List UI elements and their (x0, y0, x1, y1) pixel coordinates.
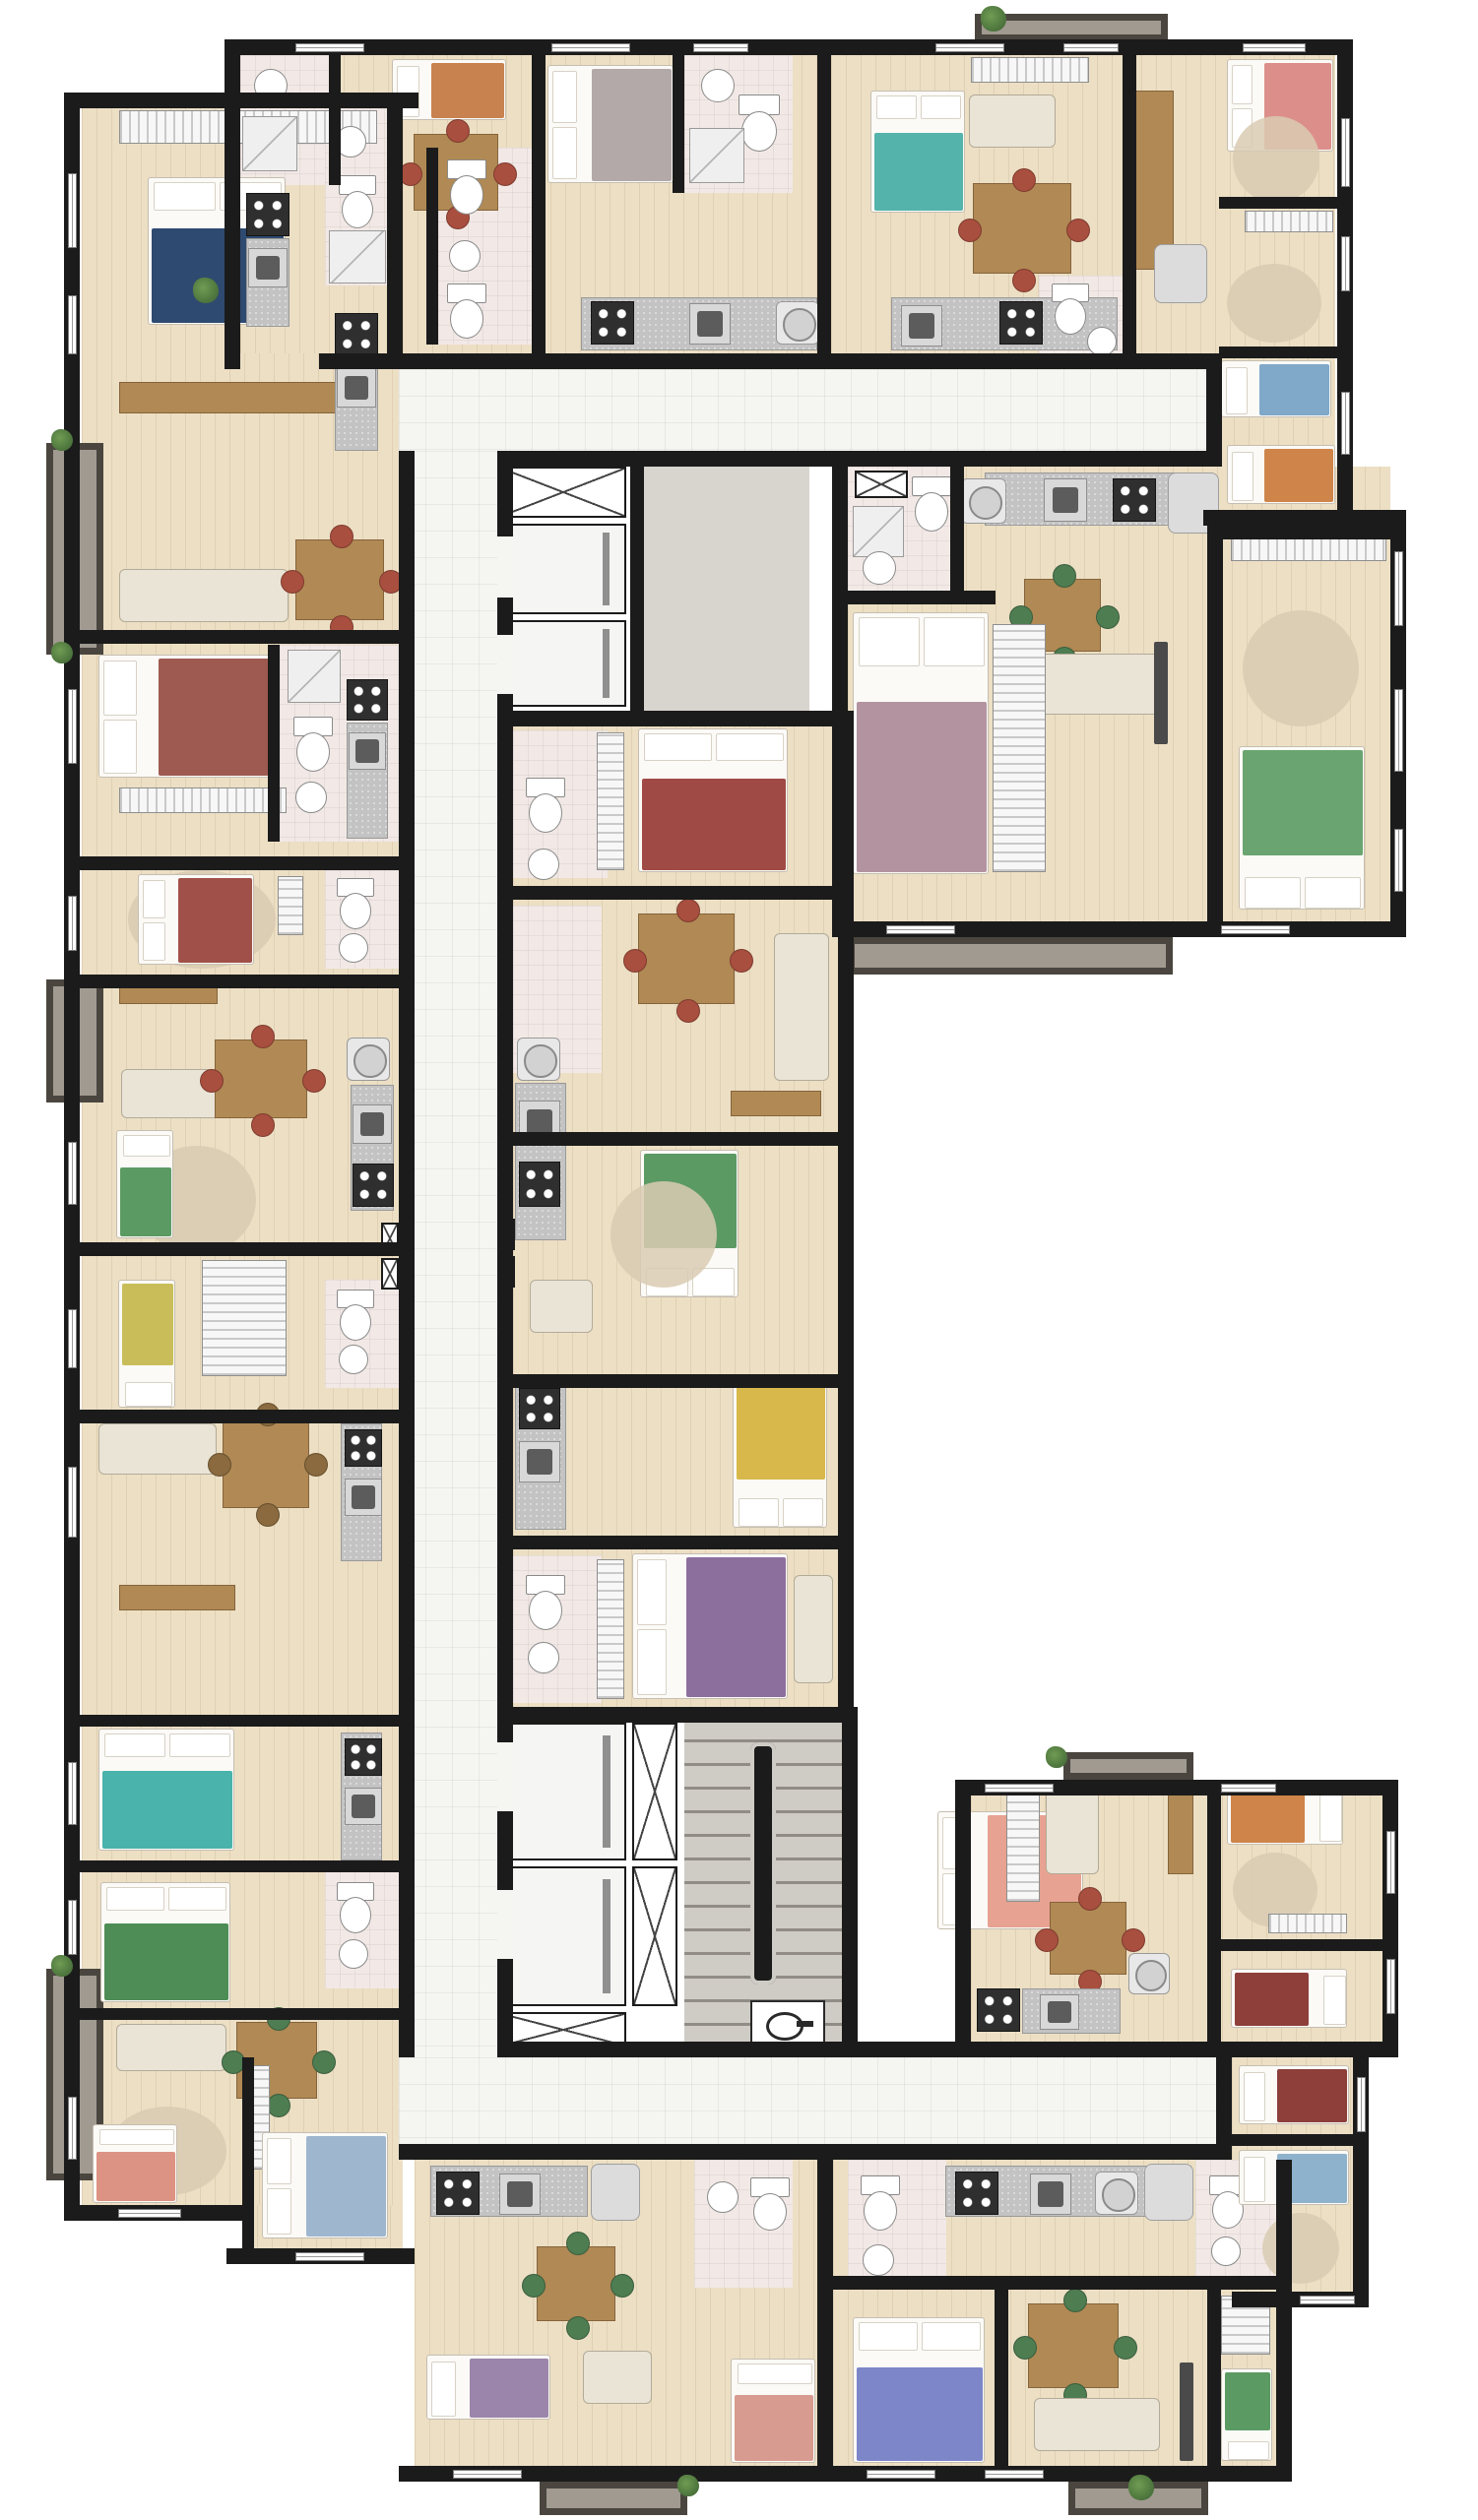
shaft (632, 1723, 677, 1860)
sideboard (119, 382, 355, 413)
kitchen-sink (1030, 2173, 1071, 2215)
bed-darkred (1239, 2065, 1349, 2124)
wall (1206, 353, 1222, 467)
wardrobe (278, 876, 303, 935)
chair (1012, 269, 1036, 292)
wall (1219, 346, 1337, 358)
chair (1053, 564, 1076, 588)
window (1221, 925, 1290, 934)
washer-drum (783, 308, 815, 341)
chair (610, 2274, 634, 2298)
balcony (848, 937, 1173, 975)
bed-duvet (104, 1923, 228, 2000)
bed-pillow (104, 1733, 165, 1757)
wall (268, 645, 280, 842)
wc-bowl (529, 1591, 562, 1630)
wall (80, 975, 403, 988)
sink-basin (909, 313, 934, 339)
bed-duvet (102, 1771, 232, 1849)
wall (1219, 197, 1337, 209)
bed-pillow (922, 2322, 981, 2351)
bed-duvet (1225, 2372, 1270, 2430)
shaft (381, 1258, 399, 1290)
window (1386, 1959, 1395, 2014)
chair (446, 119, 470, 143)
bed-orange (1227, 445, 1335, 504)
wc-bowl (529, 793, 562, 833)
bed-duvet (178, 878, 252, 963)
kitchen-sink (345, 1788, 382, 1825)
elevator (504, 1866, 626, 2006)
gap (497, 1742, 513, 1811)
chair (958, 219, 982, 242)
wardrobe (1006, 1784, 1040, 1902)
bed-pillow (1319, 1795, 1342, 1842)
bed-duvet (857, 2367, 983, 2461)
bed-pillow (738, 2363, 812, 2384)
dining-table (295, 539, 384, 620)
chair (676, 999, 700, 1023)
washer (1128, 1953, 1170, 1994)
bed-pillow (103, 661, 137, 716)
bed-pillow (1228, 2441, 1269, 2460)
bed-blue (1221, 360, 1331, 417)
kitchen-sink (519, 1441, 560, 1482)
window (68, 1142, 77, 1205)
wall (995, 2290, 1008, 2466)
wall (225, 39, 1353, 55)
kitchen-sink (1040, 1994, 1079, 2030)
basin (1087, 327, 1117, 356)
window (1394, 551, 1403, 626)
bed-salmon (731, 2359, 815, 2463)
sofa (116, 2024, 226, 2071)
balcony (1063, 1752, 1193, 1780)
gap (497, 536, 513, 598)
balcony (540, 2482, 687, 2515)
washer-drum (1102, 2178, 1134, 2211)
bed-pillow (637, 1629, 667, 1695)
stove (519, 1162, 560, 1207)
sofa (1034, 2398, 1160, 2451)
wall (513, 1536, 838, 1549)
bed-duvet (857, 702, 987, 872)
wall (630, 467, 644, 711)
wall (1232, 2134, 1353, 2146)
chair (200, 1069, 224, 1093)
basin (1211, 2236, 1241, 2266)
bed-duvet (431, 63, 504, 118)
bed-pillow (637, 1559, 667, 1625)
elev-door (603, 1879, 610, 1993)
chair (493, 162, 517, 186)
elev-door (603, 629, 610, 699)
window (295, 43, 364, 52)
wall (497, 711, 841, 726)
wc-bowl (340, 1304, 371, 1341)
window (1341, 392, 1350, 455)
bed-gray (547, 65, 674, 183)
sink-basin (697, 311, 723, 337)
chair (1013, 2336, 1037, 2360)
wall (848, 591, 996, 604)
bed-duvet (306, 2136, 386, 2236)
chair (267, 2094, 290, 2117)
sink-basin (1053, 487, 1079, 514)
toilet (739, 94, 778, 150)
stove (345, 1429, 382, 1467)
sink-basin (355, 739, 378, 762)
plant (677, 2475, 699, 2496)
armchair (583, 2351, 652, 2404)
gap (497, 635, 513, 694)
fridge (591, 2164, 640, 2221)
shower (288, 650, 341, 703)
wardrobe (971, 57, 1089, 83)
washer (517, 1038, 560, 1081)
rug (1233, 116, 1319, 203)
wall (1207, 1939, 1382, 1951)
stove (436, 2172, 480, 2215)
wall (329, 55, 341, 185)
window (1341, 118, 1350, 187)
toilet (447, 283, 484, 337)
wall (80, 1860, 403, 1872)
chair (676, 899, 700, 922)
elevator (504, 1723, 626, 1860)
bed-teal (98, 1729, 234, 1851)
wall (817, 2144, 833, 2482)
stove (955, 2172, 998, 2215)
bed-pillow (921, 95, 961, 119)
toilet (337, 1290, 372, 1339)
wall (399, 2144, 1232, 2160)
basin (528, 1642, 559, 1673)
wc-bowl (741, 111, 777, 152)
window (68, 1309, 77, 1368)
bed-pillow (1232, 452, 1253, 501)
sofa (969, 94, 1056, 148)
dining-table (1050, 1902, 1126, 1975)
sink-basin (507, 2181, 533, 2207)
bed-pillow (143, 880, 165, 918)
bed-mauve (853, 612, 989, 874)
kitchen-sink (248, 248, 288, 287)
rug (1227, 264, 1321, 343)
rug (1243, 610, 1359, 726)
kitchen-sink (901, 305, 942, 346)
basin (707, 2181, 739, 2213)
wardrobe (597, 732, 624, 870)
wall (532, 55, 546, 353)
wall (513, 886, 838, 900)
wall (80, 856, 403, 870)
wall (80, 1410, 403, 1423)
wall (955, 1780, 971, 2042)
chair (251, 1025, 275, 1048)
wall (387, 93, 403, 369)
basin (449, 240, 481, 272)
bed-purple (632, 1553, 788, 1699)
desk (1168, 1784, 1193, 1874)
chair (281, 570, 304, 594)
bed-duvet (470, 2359, 548, 2418)
bed-green (1239, 746, 1365, 910)
stove (345, 1738, 382, 1776)
basin (339, 1345, 368, 1374)
bed-duvet (874, 133, 963, 211)
bed-blue-gray (262, 2132, 388, 2238)
armchair (530, 1280, 593, 1333)
window (68, 295, 77, 354)
basin (701, 69, 735, 102)
stove (335, 313, 378, 356)
washer (776, 301, 819, 345)
wall (513, 1132, 838, 1146)
elevator (500, 524, 626, 614)
bed-pillow (1226, 367, 1248, 414)
sink-basin (256, 256, 280, 280)
elev-door (603, 533, 610, 605)
sofa (119, 569, 289, 622)
sink-basin (1038, 2181, 1063, 2207)
stove (999, 301, 1043, 345)
bed-duvet (159, 659, 270, 776)
window (1386, 1831, 1395, 1894)
toilet (447, 159, 484, 213)
bed-pillow (169, 1733, 230, 1757)
wall (1276, 2160, 1292, 2482)
toilet (1052, 283, 1087, 333)
window (1341, 236, 1350, 291)
wardrobe (993, 624, 1046, 872)
window (1221, 1784, 1276, 1793)
wall (838, 711, 854, 1707)
window (985, 2470, 1044, 2479)
window (1063, 43, 1119, 52)
bed-pillow (716, 733, 784, 761)
chair (251, 1113, 275, 1137)
sink-basin (1048, 2001, 1071, 2023)
bed-pillow (1305, 877, 1361, 909)
bed-duvet (1259, 364, 1329, 415)
window (68, 896, 77, 951)
wall (833, 2276, 1276, 2290)
wc-bowl (915, 492, 948, 532)
sofa (98, 1423, 217, 1475)
window (295, 2252, 364, 2261)
sink-basin (345, 376, 368, 400)
kitchen-sink (689, 303, 731, 345)
chair (256, 1503, 280, 1527)
bed-red (138, 874, 254, 965)
chair (566, 2316, 590, 2340)
wall (497, 1707, 857, 1723)
bed-pillow (154, 182, 216, 211)
bed-pillow (267, 2138, 291, 2184)
wardrobe (597, 1559, 624, 1699)
window (1300, 2296, 1355, 2304)
bed-lavender (426, 2355, 550, 2420)
dining-table (1028, 2303, 1119, 2388)
bed-pillow (168, 1887, 226, 1911)
chair (1078, 1887, 1102, 1911)
wc-bowl (864, 2191, 897, 2231)
wall (1203, 510, 1406, 526)
bed-teal (870, 91, 965, 213)
bed-green-single (116, 1130, 173, 1238)
shower (329, 230, 386, 283)
kitchen-sink (337, 368, 376, 408)
bed-duvet (592, 69, 672, 181)
toilet (526, 778, 563, 831)
bed-duvet (122, 1284, 173, 1365)
plant (193, 278, 219, 303)
plant (981, 6, 1006, 31)
chair (1096, 605, 1120, 629)
bed-duvet (642, 779, 786, 870)
chair (1063, 2289, 1087, 2312)
washer-drum (524, 1044, 556, 1077)
chair (1066, 219, 1090, 242)
toilet (339, 175, 374, 226)
wall (497, 2042, 1232, 2057)
tv-bench (1180, 2362, 1193, 2461)
chair (304, 1453, 328, 1477)
window (1394, 689, 1403, 772)
window (1394, 829, 1403, 892)
basin (339, 933, 368, 963)
shaft (855, 471, 908, 498)
bed-duvet (1231, 1792, 1305, 1843)
bottom-corridor (399, 2057, 1216, 2144)
sideboard (731, 1091, 821, 1116)
bed-duvet (96, 2152, 175, 2201)
kitchen-sink (353, 1104, 392, 1144)
basin (863, 551, 896, 585)
bed-pillow (924, 617, 985, 666)
stove (246, 193, 289, 236)
wc-bowl (342, 191, 373, 228)
window (985, 1784, 1054, 1793)
wall (1216, 2057, 1232, 2144)
chair (522, 2274, 546, 2298)
kitchen-sink (499, 2173, 541, 2215)
kitchen-sink (349, 732, 386, 770)
wall (80, 1715, 403, 1727)
window (68, 689, 77, 764)
toilet (293, 717, 331, 770)
wall (80, 630, 403, 644)
shower (853, 506, 904, 557)
stove (347, 679, 388, 721)
bed-lightblue (1239, 2150, 1349, 2205)
bed-pillow (859, 617, 920, 666)
bed-duvet (1264, 449, 1333, 502)
shaft (500, 467, 626, 518)
chair (330, 525, 353, 548)
bed-pillow (644, 733, 712, 761)
bed-duvet (1235, 1973, 1309, 2026)
washer (961, 478, 1006, 524)
stove (1113, 478, 1156, 522)
window (1243, 43, 1306, 52)
wc-bowl (450, 299, 483, 339)
bed-olive (118, 1280, 175, 1408)
bed-orange (392, 59, 506, 120)
bed-darkred (1231, 1969, 1347, 2028)
bed-pillow (103, 720, 137, 775)
wall (319, 353, 1206, 369)
washer (1095, 2172, 1138, 2215)
wall (399, 2466, 1292, 2482)
bed-pillow (859, 2322, 918, 2351)
bed-pillow (739, 1498, 779, 1527)
window (867, 2470, 935, 2479)
fridge (1144, 2164, 1193, 2221)
elevator (500, 620, 626, 707)
elev-door (603, 1735, 610, 1848)
bed-pillow (1244, 2157, 1265, 2202)
wall (242, 2057, 254, 2248)
plant (1128, 2475, 1154, 2500)
wc-bowl (340, 1897, 371, 1933)
window (68, 1900, 77, 1955)
top-corridor (399, 369, 1206, 451)
chair (730, 949, 753, 973)
chair (208, 1453, 231, 1477)
sofa (794, 1575, 833, 1683)
bed-pillow (143, 922, 165, 961)
plant (51, 642, 73, 663)
bed-pillow (783, 1498, 823, 1527)
sink-basin (360, 1112, 384, 1136)
bed-pillow (106, 1887, 164, 1911)
stove (353, 1164, 394, 1207)
bed-pillow (123, 1135, 170, 1157)
chair (312, 2050, 336, 2074)
window (1357, 2077, 1366, 2132)
dining-table (223, 1417, 309, 1508)
window (693, 43, 748, 52)
wardrobe (202, 1260, 287, 1376)
toilet (912, 476, 949, 530)
shaft (632, 1866, 677, 2006)
sink-basin (352, 1485, 374, 1508)
bed-yellow (733, 1382, 827, 1528)
wall (1223, 526, 1390, 539)
wall (80, 2008, 403, 2020)
chair (1035, 1928, 1059, 1952)
washer-drum (1135, 1960, 1167, 1991)
sofa (774, 933, 829, 1081)
wall (426, 148, 438, 345)
window (68, 1762, 77, 1825)
wall (497, 451, 1209, 467)
bed-pillow (125, 1382, 172, 1407)
window (68, 173, 77, 248)
wall (950, 467, 964, 595)
fridge (1154, 244, 1207, 303)
bed-duvet (1243, 750, 1363, 855)
wall (817, 55, 831, 353)
bed-duvet (686, 1557, 786, 1697)
chair (1114, 2336, 1137, 2360)
sink-basin (352, 1795, 374, 1817)
gap (497, 1890, 513, 1959)
dining-table (537, 2246, 615, 2321)
dining-table (973, 183, 1071, 274)
